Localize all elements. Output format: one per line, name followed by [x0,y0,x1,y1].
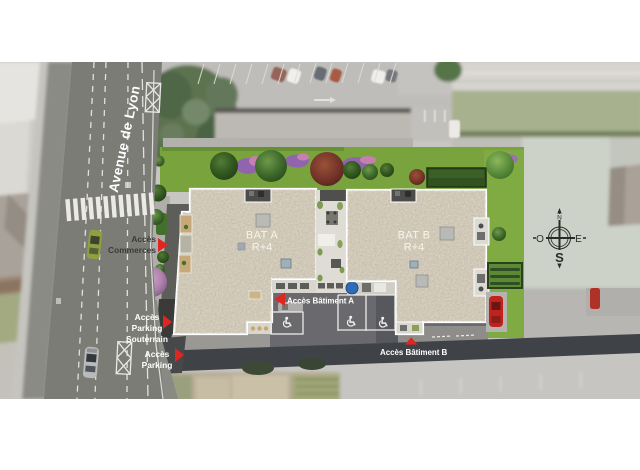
svg-text:Accès: Accès [135,312,160,322]
svg-text:Accès: Accès [145,349,170,359]
svg-text:Accès Bâtiment B: Accès Bâtiment B [380,348,447,357]
svg-text:Parking: Parking [132,323,163,333]
svg-text:N: N [557,215,562,222]
svg-text:Commerces: Commerces [108,245,156,255]
svg-text:Accès: Accès [131,234,156,244]
svg-text:Souterrain: Souterrain [126,334,168,344]
svg-text:R+4: R+4 [404,242,425,254]
svg-text:BAT B: BAT B [398,230,431,242]
svg-text:E: E [575,234,582,245]
svg-text:R+4: R+4 [252,242,273,254]
svg-text:Accès Bâtiment A: Accès Bâtiment A [287,297,354,306]
svg-text:O: O [536,234,544,245]
svg-text:S: S [555,250,564,265]
svg-text:Parking: Parking [142,360,173,370]
svg-text:BAT A: BAT A [246,230,278,242]
